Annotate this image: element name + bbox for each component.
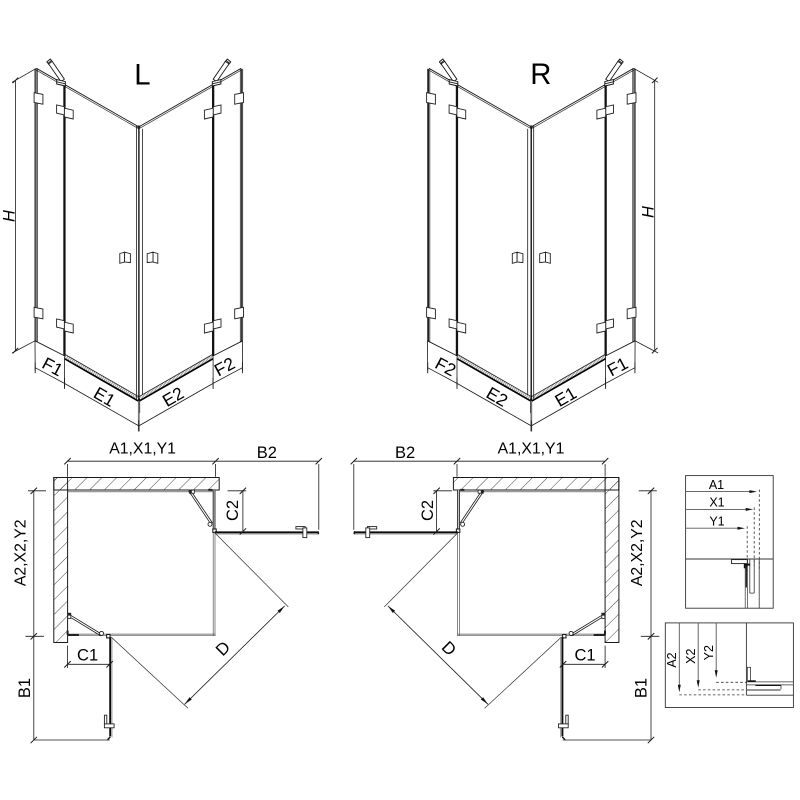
svg-text:C2: C2 bbox=[224, 500, 242, 521]
svg-text:L: L bbox=[134, 58, 150, 91]
svg-text:B1: B1 bbox=[633, 678, 651, 698]
svg-text:A2,X2,Y2: A2,X2,Y2 bbox=[629, 519, 646, 586]
svg-text:H: H bbox=[640, 206, 658, 218]
svg-text:A1,X1,Y1: A1,X1,Y1 bbox=[498, 441, 565, 458]
svg-text:A2,X2,Y2: A2,X2,Y2 bbox=[13, 519, 30, 586]
svg-text:A1: A1 bbox=[709, 478, 724, 492]
svg-text:A1,X1,Y1: A1,X1,Y1 bbox=[109, 441, 176, 458]
svg-text:B1: B1 bbox=[16, 678, 34, 698]
svg-text:C1: C1 bbox=[574, 646, 595, 664]
svg-text:H: H bbox=[0, 210, 18, 222]
svg-text:A2: A2 bbox=[665, 652, 679, 667]
svg-text:C1: C1 bbox=[77, 646, 98, 664]
svg-text:Y1: Y1 bbox=[709, 514, 724, 528]
svg-text:B2: B2 bbox=[257, 444, 277, 462]
svg-text:B2: B2 bbox=[395, 444, 415, 462]
svg-text:X1: X1 bbox=[709, 496, 724, 510]
svg-text:C2: C2 bbox=[419, 500, 437, 521]
svg-text:X2: X2 bbox=[684, 649, 698, 664]
svg-text:R: R bbox=[530, 58, 551, 91]
svg-text:Y2: Y2 bbox=[702, 645, 716, 660]
